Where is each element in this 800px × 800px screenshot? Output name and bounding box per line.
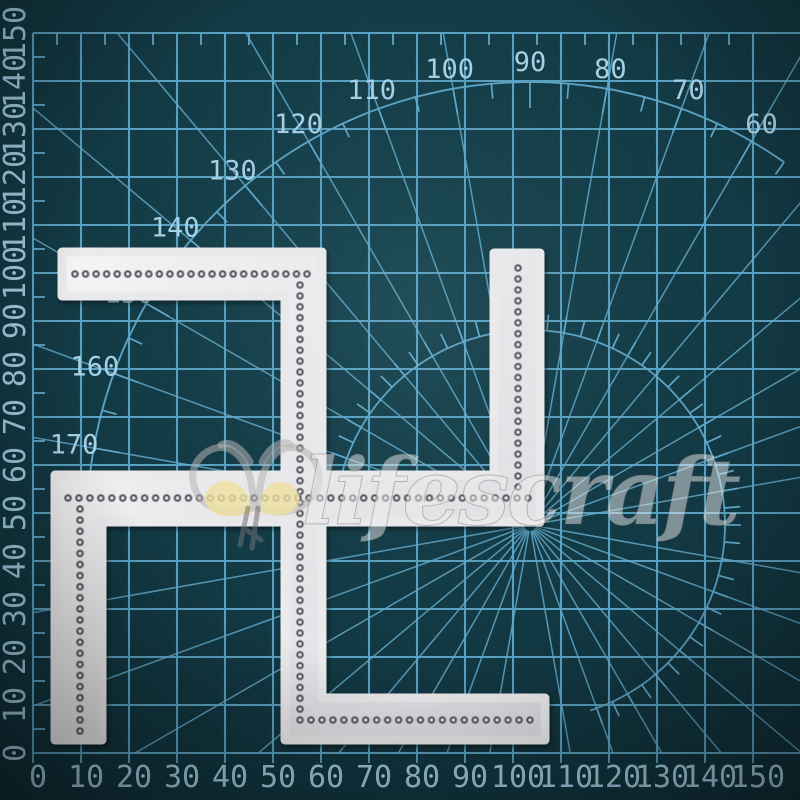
stitch-hole: [504, 716, 513, 725]
cutting-mat-scene: 6070809010011012013014015016017001020304…: [0, 0, 800, 800]
stitch-hole: [184, 494, 193, 503]
stitch-hole: [296, 607, 305, 616]
left-ruler-number-70: 70: [0, 399, 33, 435]
stitch-hole: [296, 596, 305, 605]
stitch-hole: [296, 357, 305, 366]
protractor-label-130: 130: [208, 155, 257, 186]
stitch-hole: [76, 505, 85, 514]
stitch-hole: [514, 417, 523, 426]
stitch-hole: [282, 270, 291, 279]
stitch-hole: [134, 270, 143, 279]
stitch-hole: [229, 270, 238, 279]
stitch-hole: [449, 716, 458, 725]
bottom-ruler-number-0: 0: [29, 760, 47, 795]
bottom-ruler-number-100: 100: [491, 760, 545, 795]
stitch-hole: [296, 661, 305, 670]
stitch-hole: [76, 727, 85, 736]
stitch-hole: [145, 270, 154, 279]
stitch-hole: [76, 716, 85, 725]
protractor-label-170: 170: [50, 430, 99, 461]
left-ruler-number-120: 120: [0, 150, 33, 204]
stitch-hole: [81, 270, 90, 279]
stitch-hole: [296, 389, 305, 398]
stitch-hole: [482, 716, 491, 725]
stitch-hole: [239, 270, 248, 279]
stitch-hole: [76, 693, 85, 702]
left-ruler-number-10: 10: [0, 687, 33, 723]
stitch-hole: [108, 494, 117, 503]
stitch-hole: [76, 616, 85, 625]
left-ruler-number-60: 60: [0, 447, 33, 483]
stitch-hole: [76, 705, 85, 714]
stitch-hole: [76, 571, 85, 580]
stitch-hole: [296, 629, 305, 638]
stitch-hole: [113, 270, 122, 279]
left-ruler-number-80: 80: [0, 351, 33, 387]
stitch-hole: [514, 406, 523, 415]
stitch-hole: [514, 297, 523, 306]
stitch-hole: [197, 270, 206, 279]
stitch-hole: [493, 716, 502, 725]
stitch-hole: [514, 264, 523, 273]
stitch-hole: [296, 368, 305, 377]
stitch-hole: [526, 716, 535, 725]
bottom-ruler-number-90: 90: [452, 760, 488, 795]
stitch-hole: [76, 560, 85, 569]
left-ruler-number-20: 20: [0, 639, 33, 675]
stitch-hole: [76, 649, 85, 658]
stitch-hole: [173, 494, 182, 503]
bottom-ruler-number-50: 50: [260, 760, 296, 795]
bottom-ruler-number-20: 20: [116, 760, 152, 795]
stitch-hole: [155, 270, 164, 279]
stitch-hole: [296, 683, 305, 692]
left-ruler-number-30: 30: [0, 591, 33, 627]
stitch-hole: [340, 716, 349, 725]
left-ruler-number-110: 110: [0, 198, 33, 252]
stitch-hole: [292, 270, 301, 279]
stitch-hole: [76, 638, 85, 647]
protractor-label-120: 120: [274, 109, 323, 140]
stitch-hole: [208, 270, 217, 279]
bottom-ruler-number-120: 120: [587, 760, 641, 795]
stitch-hole: [329, 716, 338, 725]
stitch-hole: [76, 594, 85, 603]
stitch-hole: [76, 627, 85, 636]
protractor-label-90: 90: [514, 47, 547, 78]
protractor-label-60: 60: [745, 109, 778, 140]
stitch-hole: [76, 516, 85, 525]
stitch-hole: [296, 400, 305, 409]
stitch-hole: [515, 716, 524, 725]
bottom-ruler-number-60: 60: [308, 760, 344, 795]
stitch-hole: [296, 346, 305, 355]
stitch-hole: [303, 270, 312, 279]
stitch-hole: [438, 716, 447, 725]
stitch-hole: [71, 270, 80, 279]
bottom-ruler-number-40: 40: [212, 760, 248, 795]
stitch-hole: [383, 716, 392, 725]
stitch-hole: [372, 716, 381, 725]
stitch-hole: [296, 640, 305, 649]
bottom-ruler-number-30: 30: [164, 760, 200, 795]
stitch-hole: [514, 395, 523, 404]
stitch-hole: [76, 660, 85, 669]
stitch-hole: [76, 582, 85, 591]
left-ruler-number-50: 50: [0, 495, 33, 531]
stitch-hole: [166, 270, 175, 279]
stitch-hole: [76, 605, 85, 614]
protractor-label-160: 160: [71, 352, 120, 383]
stitch-hole: [514, 275, 523, 284]
stitch-hole: [296, 324, 305, 333]
stitch-hole: [427, 716, 436, 725]
stitch-hole: [296, 618, 305, 627]
stitch-hole: [514, 428, 523, 437]
stitch-hole: [250, 270, 259, 279]
stitch-hole: [118, 494, 127, 503]
bottom-ruler-number-150: 150: [731, 760, 785, 795]
stitch-hole: [187, 270, 196, 279]
photo-cutting-mat-with-dies: 6070809010011012013014015016017001020304…: [0, 0, 800, 800]
stitch-hole: [514, 329, 523, 338]
protractor-label-70: 70: [672, 75, 705, 106]
left-ruler-number-150: 150: [0, 6, 33, 60]
bottom-ruler-number-130: 130: [635, 760, 689, 795]
stitch-hole: [76, 538, 85, 547]
left-ruler-number-140: 140: [0, 54, 33, 108]
stitch-hole: [218, 270, 227, 279]
stitch-hole: [296, 281, 305, 290]
stitch-hole: [162, 494, 171, 503]
stitch-hole: [296, 585, 305, 594]
stitch-hole: [261, 270, 270, 279]
stitch-hole: [123, 270, 132, 279]
stitch-hole: [151, 494, 160, 503]
protractor-label-100: 100: [425, 54, 474, 85]
stitch-hole: [514, 340, 523, 349]
stitch-hole: [307, 716, 316, 725]
bottom-ruler-number-140: 140: [683, 760, 737, 795]
stitch-hole: [394, 716, 403, 725]
stitch-hole: [405, 716, 414, 725]
stitch-hole: [76, 671, 85, 680]
stitch-hole: [64, 494, 73, 503]
stitch-hole: [296, 302, 305, 311]
stitch-hole: [97, 494, 106, 503]
stitch-hole: [296, 716, 305, 725]
protractor-label-110: 110: [347, 75, 396, 106]
stitch-hole: [296, 335, 305, 344]
stitch-hole: [296, 672, 305, 681]
stitch-hole: [76, 682, 85, 691]
left-ruler-number-100: 100: [0, 246, 33, 300]
stitch-hole: [514, 286, 523, 295]
stitch-hole: [514, 318, 523, 327]
stitch-hole: [296, 422, 305, 431]
protractor-label-140: 140: [151, 212, 200, 243]
stitch-hole: [271, 270, 280, 279]
bottom-ruler-number-110: 110: [539, 760, 593, 795]
stitch-hole: [318, 716, 327, 725]
stitch-hole: [514, 351, 523, 360]
left-ruler-number-130: 130: [0, 102, 33, 156]
stitch-hole: [140, 494, 149, 503]
left-ruler-number-90: 90: [0, 303, 33, 339]
bottom-ruler-number-80: 80: [404, 760, 440, 795]
stitch-hole: [296, 650, 305, 659]
stitch-hole: [75, 494, 84, 503]
stitch-hole: [514, 373, 523, 382]
left-ruler-number-40: 40: [0, 543, 33, 579]
stitch-hole: [92, 270, 101, 279]
stitch-hole: [296, 379, 305, 388]
stitch-hole: [296, 313, 305, 322]
stitch-hole: [76, 527, 85, 536]
bottom-ruler-number-10: 10: [68, 760, 104, 795]
stitch-hole: [176, 270, 185, 279]
stitch-hole: [296, 411, 305, 420]
stitch-hole: [76, 549, 85, 558]
stitch-hole: [296, 705, 305, 714]
stitch-hole: [514, 384, 523, 393]
stitch-hole: [296, 694, 305, 703]
stitch-hole: [86, 494, 95, 503]
stitch-hole: [296, 574, 305, 583]
stitch-hole: [102, 270, 111, 279]
stitch-hole: [416, 716, 425, 725]
left-ruler-number-0: 0: [0, 744, 33, 762]
stitch-hole: [514, 362, 523, 371]
stitch-hole: [296, 553, 305, 562]
stitch-hole: [296, 563, 305, 572]
bottom-ruler-number-70: 70: [356, 760, 392, 795]
stitch-hole: [129, 494, 138, 503]
stitch-hole: [296, 292, 305, 301]
stitch-hole: [514, 308, 523, 317]
stitch-hole: [460, 716, 469, 725]
stitch-hole: [351, 716, 360, 725]
watermark-text: lifescraft: [302, 438, 740, 546]
stitch-hole: [471, 716, 480, 725]
protractor-label-80: 80: [594, 54, 627, 85]
stitch-hole: [361, 716, 370, 725]
